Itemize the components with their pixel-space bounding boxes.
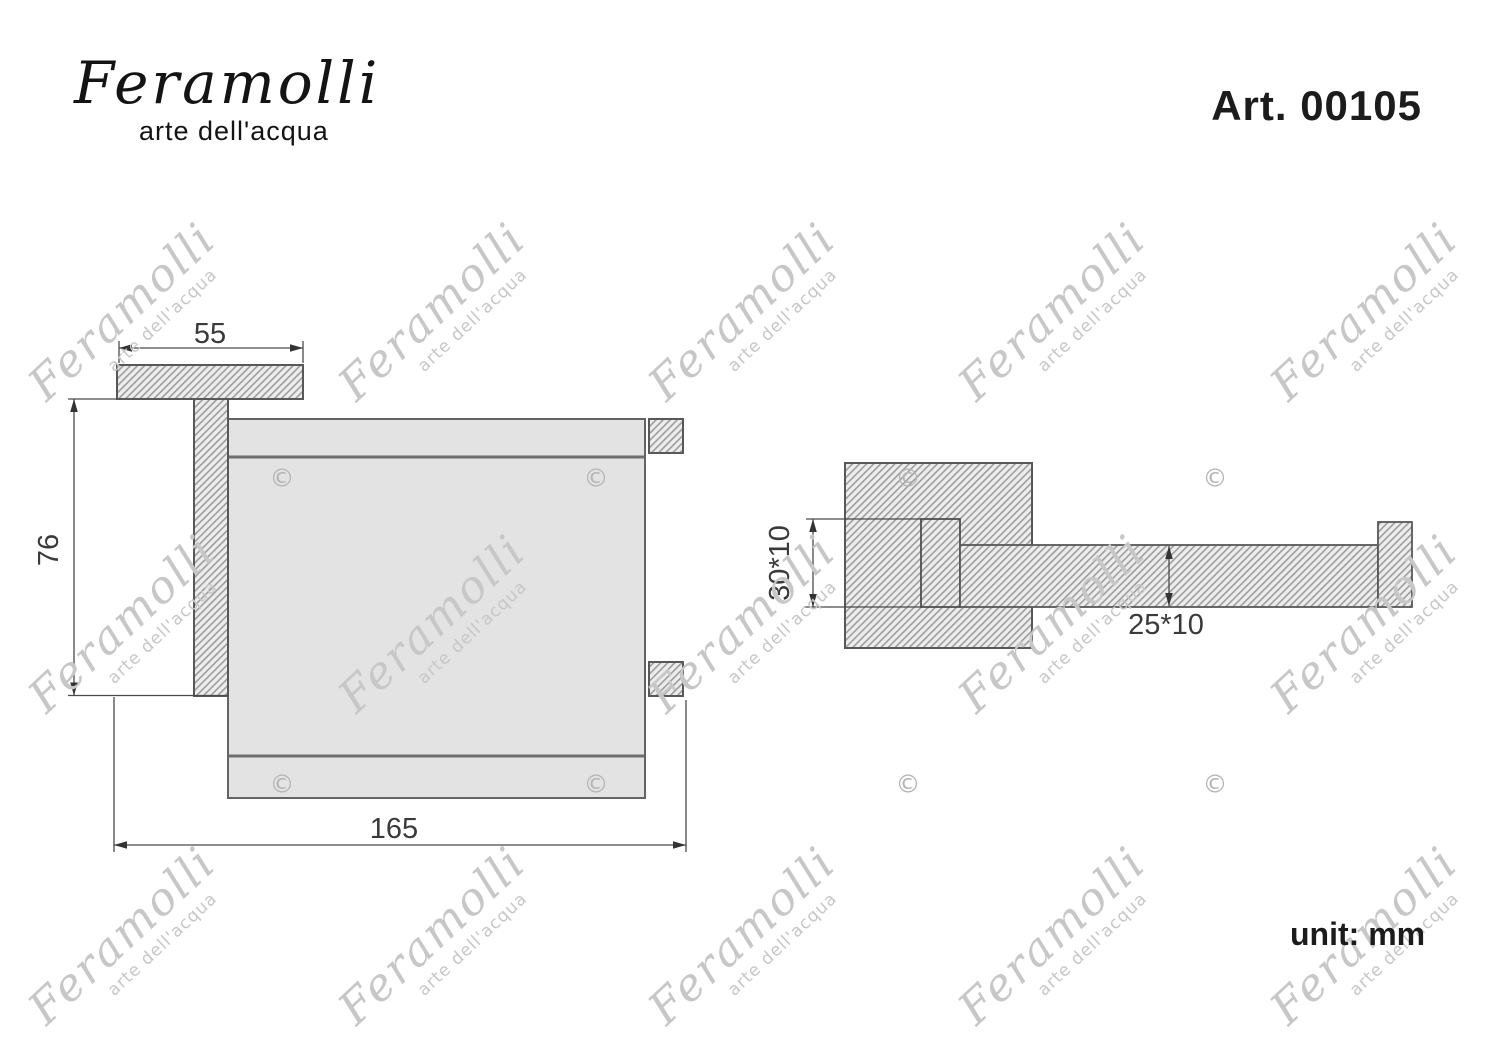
arrowhead [70,399,78,412]
dim-label-wall-profile: 30*10 [764,525,796,601]
mount-arm-section [194,399,228,696]
dim-label-total-width: 165 [370,813,418,845]
arm-end-tab-section [1378,522,1412,607]
arrowhead [290,344,303,352]
dim-label-height: 76 [33,534,65,566]
arrowhead [809,594,817,607]
dim-label-plate-width: 55 [194,318,226,350]
brand-tagline: arte dell'acqua [139,116,329,147]
side-view: 30*10 25*10 [764,463,1412,648]
arrowhead [673,841,686,849]
wall-plate-section [117,365,303,399]
technical-drawing: 55 76 165 [0,0,1500,1058]
arrowhead [809,519,817,532]
arrowhead [114,841,127,849]
brand-logo: Feramolli [74,52,380,116]
dim-label-arm-profile: 25*10 [1128,609,1204,641]
arrowhead [70,683,78,696]
end-tab-bottom-section [649,662,683,696]
page: 55 76 165 [0,0,1500,1058]
unit-note: unit: mm [1290,916,1425,953]
article-number: Art. 00105 [1211,82,1422,130]
roll-body [228,419,645,798]
front-view: 55 76 165 [33,318,686,852]
arrowhead [119,344,132,352]
end-tab-top-section [649,419,683,453]
